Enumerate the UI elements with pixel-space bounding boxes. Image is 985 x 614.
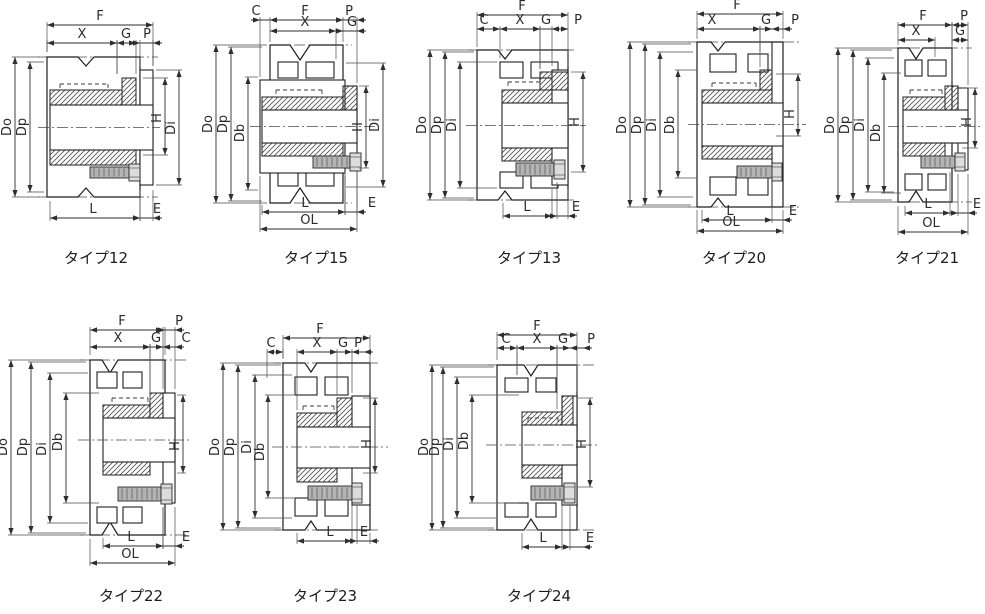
dim-arrow (27, 62, 32, 69)
dim-label: X (78, 27, 87, 42)
dimension-left-2: Db (233, 77, 258, 190)
taper-bushing-hatched-section (337, 398, 352, 427)
dim-arrow (517, 345, 524, 350)
dim-arrow (429, 365, 434, 372)
dim-label: X (708, 13, 717, 28)
dim-arrow (63, 496, 68, 503)
dim-label: G (541, 13, 551, 28)
bolt-shaft (737, 166, 772, 178)
dim-arrow (753, 26, 760, 31)
dim-arrow (563, 544, 570, 549)
dimension-top-4: G (334, 15, 366, 34)
figure-type-2: FCXGPDoDpDiHLEタイプ13 (415, 0, 586, 267)
dim-arrow (835, 48, 840, 55)
dim-arrow (587, 398, 592, 405)
dim-arrow (345, 349, 352, 354)
dim-arrow (570, 332, 577, 337)
dim-label: Do (0, 118, 15, 136)
taper-bushing-hatched-section (262, 97, 343, 110)
dim-label: L (539, 531, 547, 546)
dim-arrow (500, 26, 507, 31)
figure-type-5: FPXGCDoDpDiDbHLEOLタイプ22 (0, 314, 192, 605)
dim-arrow (627, 200, 632, 207)
dim-label: Di (853, 118, 868, 132)
dim-label: Dp (223, 438, 238, 456)
dim-arrow (951, 210, 958, 215)
dim-arrow (363, 335, 370, 340)
dimension-bottom-2: OL (697, 210, 783, 234)
web-recess-slot (710, 177, 736, 195)
dim-arrow (469, 496, 474, 503)
dim-label: P (143, 27, 151, 42)
dim-label: E (182, 530, 190, 545)
dim-arrow (252, 511, 257, 518)
dim-arrow (454, 377, 459, 384)
dim-arrow (213, 196, 218, 203)
dim-arrow (283, 335, 290, 340)
web-recess-slot (500, 62, 523, 78)
dim-label: X (912, 24, 921, 39)
figure-caption: タイプ23 (293, 587, 357, 605)
taper-bushing-hatched-section (343, 86, 357, 110)
dimension-left-1: Dp (15, 62, 44, 192)
dim-arrow (265, 395, 270, 402)
dim-arrow (510, 345, 517, 350)
dim-arrow (12, 57, 17, 64)
bolt-head (772, 163, 782, 181)
taper-bushing-hatched-section (702, 146, 772, 159)
web-recess-slot (97, 507, 117, 523)
dim-label: L (301, 196, 309, 211)
taper-bushing-hatched-section (103, 405, 150, 418)
dim-arrow (783, 26, 790, 31)
pulley-type-diagram-sheet: FXGPDoDpHDiLEタイプ12CFPXGDoDpDbHDiLEOLタイプ1… (0, 0, 985, 614)
figure-caption: タイプ13 (497, 249, 561, 267)
dim-arrow (235, 521, 240, 528)
dim-label: L (924, 197, 932, 212)
dim-label: L (326, 525, 334, 540)
figure-type-4: FPXGDoDpDiDbHLEOLタイプ21 (823, 9, 981, 267)
taper-bushing-hatched-section (945, 86, 958, 110)
dim-arrow (469, 395, 474, 402)
dim-arrow (276, 349, 283, 354)
dim-arrow (972, 88, 977, 95)
dim-arrow (28, 362, 33, 369)
taper-bushing-hatched-section (50, 150, 136, 165)
dim-arrow (850, 193, 855, 200)
figure-caption: タイプ15 (284, 249, 348, 267)
dim-arrow (442, 52, 447, 59)
dim-arrow (550, 345, 557, 350)
dim-label: F (518, 0, 525, 14)
dim-label: H (150, 113, 165, 123)
dim-arrow (697, 26, 704, 31)
dim-arrow (228, 47, 233, 54)
dim-arrow (427, 193, 432, 200)
dim-arrow (330, 349, 337, 354)
dim-label: H (575, 439, 590, 449)
dim-arrow (47, 40, 54, 45)
dim-label: X (114, 331, 123, 346)
dim-arrow (905, 210, 912, 215)
dim-label: Dp (15, 118, 30, 136)
dim-arrow (265, 491, 270, 498)
dim-arrow (454, 511, 459, 518)
dim-arrow (338, 209, 345, 214)
web-recess-slot (123, 372, 142, 388)
web-recess-slot (325, 377, 348, 395)
dim-arrow (245, 183, 250, 190)
dim-arrow (552, 26, 559, 31)
dimension-left-3: Db (869, 73, 901, 193)
dimension-top-4: P (552, 13, 582, 32)
web-recess-slot (295, 377, 317, 395)
dim-label: Dp (216, 115, 231, 133)
dim-arrow (213, 45, 218, 52)
figure-type-6: FCXGPDoDpDiDbHLEタイプ23 (208, 322, 388, 605)
web-recess-slot (295, 498, 317, 516)
dim-arrow (162, 78, 167, 85)
dim-arrow (180, 395, 185, 402)
dim-label: P (354, 336, 362, 351)
dim-label: H (168, 441, 183, 451)
dimension-bottom-1: E (949, 174, 981, 216)
dim-label: X (301, 15, 310, 30)
dim-arrow (697, 228, 704, 233)
figure-caption: タイプ21 (895, 249, 959, 267)
web-recess-slot (325, 498, 348, 516)
dim-label: Di (442, 437, 457, 451)
dim-label: P (175, 314, 183, 329)
dim-arrow (627, 42, 632, 49)
dim-label: Dp (430, 116, 445, 134)
dim-arrow (555, 544, 562, 549)
dim-arrow (47, 516, 52, 523)
dim-arrow (133, 215, 140, 220)
dim-arrow (898, 37, 905, 42)
dim-arrow (865, 58, 870, 65)
dim-arrow (252, 375, 257, 382)
dim-arrow (270, 17, 277, 22)
dim-arrow (440, 521, 445, 528)
bolt-head (161, 484, 172, 504)
dim-label: C (251, 4, 260, 19)
dim-label: Db (233, 124, 248, 142)
taper-bushing-hatched-section (122, 78, 136, 105)
dim-arrow (110, 40, 117, 45)
dim-label: H (960, 117, 975, 127)
dim-arrow (850, 50, 855, 57)
dim-label: C (501, 332, 510, 347)
dim-arrow (350, 226, 357, 231)
figure-type-0: FXGPDoDpHDiLEタイプ12 (0, 9, 182, 267)
web-recess-slot (928, 174, 946, 190)
dim-label: F (733, 0, 740, 13)
dim-arrow (657, 190, 662, 197)
dim-label: Db (663, 116, 678, 134)
dim-label: OL (722, 215, 740, 230)
dim-arrow (835, 195, 840, 202)
dim-label: F (919, 9, 926, 24)
dim-label: X (313, 336, 322, 351)
bolt-shaft (118, 487, 161, 501)
dim-arrow (795, 74, 800, 81)
dim-arrow (63, 393, 68, 400)
dim-arrow (370, 538, 377, 543)
dim-arrow (580, 72, 585, 79)
web-recess-slot (748, 177, 768, 195)
dim-arrow (47, 373, 52, 380)
dim-label: E (973, 197, 981, 212)
dim-arrow (47, 22, 54, 27)
dim-arrow (336, 28, 343, 33)
dim-arrow (220, 523, 225, 530)
dim-arrow (176, 178, 181, 185)
dim-arrow (357, 28, 364, 33)
dim-arrow (972, 141, 977, 148)
dim-arrow (503, 213, 510, 218)
dim-arrow (380, 63, 385, 70)
dim-label: X (533, 332, 542, 347)
dim-arrow (180, 466, 185, 473)
dim-label: Do (615, 116, 630, 134)
web-recess-slot (306, 62, 334, 78)
dim-arrow (776, 11, 783, 16)
dim-label: C (181, 331, 190, 346)
dim-arrow (350, 538, 357, 543)
dim-arrow (363, 161, 368, 168)
taper-bushing-hatched-section (562, 396, 573, 425)
dim-label: C (266, 336, 275, 351)
dim-label: G (121, 27, 131, 42)
web-recess-slot (748, 54, 768, 72)
dim-arrow (945, 22, 952, 27)
web-recess-slot (505, 378, 528, 392)
dim-label: E (789, 204, 797, 219)
dim-arrow (881, 73, 886, 80)
dim-arrow (372, 398, 377, 405)
dim-label: Do (0, 438, 11, 456)
dim-label: F (96, 9, 103, 24)
dim-label: P (574, 13, 582, 28)
dim-arrow (103, 543, 110, 548)
dim-label: Di (445, 118, 460, 132)
dim-arrow (364, 349, 371, 354)
dim-arrow (162, 148, 167, 155)
dim-label: G (955, 24, 965, 39)
dim-arrow (702, 217, 709, 222)
dim-arrow (143, 344, 150, 349)
dim-arrow (442, 191, 447, 198)
web-recess-slot (505, 503, 528, 517)
bolt-shaft (90, 167, 129, 178)
dim-label: Di (368, 118, 383, 132)
dim-label: X (516, 13, 525, 28)
dim-arrow (8, 360, 13, 367)
dimension-top-3: G (952, 24, 968, 43)
dim-label: OL (300, 213, 318, 228)
dimension-top-1: C (266, 336, 283, 378)
dim-label: Db (51, 433, 66, 451)
figure-type-7: FCXGPDoDpDiDbHLEタイプ24 (417, 319, 598, 605)
taper-bushing-hatched-section (540, 72, 568, 90)
dim-arrow (961, 229, 968, 234)
dim-arrow (561, 26, 568, 31)
dimension-left-3: Db (663, 70, 697, 178)
dim-arrow (440, 367, 445, 374)
dim-label: Do (415, 116, 430, 134)
dim-arrow (642, 198, 647, 205)
dim-label: OL (121, 547, 139, 562)
dim-arrow (176, 70, 181, 77)
figure-type-1: CFPXGDoDpDbHDiLEOLタイプ15 (201, 4, 386, 267)
dim-label: L (127, 530, 135, 545)
dim-label: H (568, 117, 583, 127)
taper-bushing-hatched-section (103, 462, 150, 475)
dim-arrow (561, 12, 568, 17)
dim-label: G (558, 332, 568, 347)
dim-label: E (153, 202, 161, 217)
dim-label: Do (823, 116, 838, 134)
taper-bushing-hatched-section (150, 393, 163, 418)
dim-label: Db (869, 124, 884, 142)
web-recess-slot (905, 60, 922, 76)
web-recess-slot (123, 507, 142, 523)
dim-arrow (90, 327, 97, 332)
dim-arrow (235, 365, 240, 372)
taper-bushing-hatched-section (297, 413, 337, 427)
dim-label: L (89, 202, 97, 217)
technical-drawing-canvas: FXGPDoDpHDiLEタイプ12CFPXGDoDpDbHDiLEOLタイプ1… (0, 0, 985, 614)
bolt-head (352, 483, 362, 503)
dim-arrow (220, 363, 225, 370)
figure-caption: タイプ12 (64, 249, 128, 267)
dim-arrow (493, 26, 500, 31)
web-recess-slot (97, 372, 117, 388)
taper-bushing-hatched-section (502, 148, 552, 161)
dim-arrow (270, 28, 277, 33)
dim-arrow (27, 185, 32, 192)
dim-label: G (761, 13, 771, 28)
dim-arrow (580, 165, 585, 172)
dim-arrow (928, 37, 935, 42)
dim-arrow (372, 466, 377, 473)
dim-arrow (50, 215, 57, 220)
dim-label: Db (457, 432, 472, 450)
figure-caption: タイプ22 (99, 587, 163, 605)
dim-label: H (783, 109, 798, 119)
taper-bushing-hatched-section (522, 465, 562, 478)
dim-arrow (522, 544, 529, 549)
dimension-right-0: H (575, 398, 593, 487)
dim-label: C (479, 13, 488, 28)
taper-bushing-hatched-section (903, 97, 945, 110)
dim-arrow (765, 217, 772, 222)
dim-arrow (336, 17, 343, 22)
dim-arrow (90, 560, 97, 565)
dim-arrow (156, 543, 163, 548)
bolt-shaft (308, 486, 352, 500)
web-recess-slot (928, 60, 946, 76)
dim-label: OL (922, 216, 940, 231)
figure-caption: タイプ20 (702, 249, 766, 267)
dim-arrow (429, 523, 434, 530)
dim-label: F (316, 322, 323, 337)
dimension-left-1: Dp (630, 44, 691, 205)
dim-arrow (260, 226, 267, 231)
dim-arrow (90, 344, 97, 349)
dim-arrow (12, 190, 17, 197)
taper-bushing-hatched-section (702, 90, 772, 103)
dim-label: Dp (630, 116, 645, 134)
dim-label: G (338, 336, 348, 351)
dim-label: G (347, 15, 357, 30)
dim-arrow (865, 185, 870, 192)
taper-bushing-hatched-section (502, 90, 552, 103)
dim-label: P (791, 13, 799, 28)
dimension-right-0: H (568, 72, 586, 172)
taper-bushing-hatched-section (760, 70, 772, 90)
dim-arrow (245, 77, 250, 84)
dim-label: G (151, 331, 161, 346)
dim-arrow (297, 538, 304, 543)
dim-arrow (380, 180, 385, 187)
dim-arrow (457, 62, 462, 69)
dim-arrow (427, 50, 432, 57)
dim-label: H (351, 122, 366, 132)
figure-type-3: FXGPDoDpDiDbHLEOLタイプ20 (615, 0, 806, 267)
dim-label: Dp (16, 438, 31, 456)
dim-arrow (795, 129, 800, 136)
dim-arrow (657, 52, 662, 59)
dim-arrow (168, 560, 175, 565)
dim-label: E (368, 196, 376, 211)
dim-arrow (587, 480, 592, 487)
dim-label: L (523, 200, 531, 215)
dim-label: Do (208, 438, 223, 456)
bolt-head (564, 483, 575, 503)
figure-caption: タイプ24 (507, 587, 571, 605)
dim-arrow (357, 209, 364, 214)
dim-arrow (776, 228, 783, 233)
dim-arrow (642, 44, 647, 51)
dim-label: F (118, 314, 125, 329)
dim-label: E (586, 531, 594, 546)
web-recess-slot (536, 503, 556, 517)
bolt-head (554, 160, 565, 179)
dim-arrow (533, 26, 540, 31)
dim-arrow (550, 213, 557, 218)
dim-arrow (457, 181, 462, 188)
web-recess-slot (710, 54, 736, 72)
dim-label: P (960, 9, 968, 24)
taper-bushing-hatched-section (50, 90, 122, 105)
dim-arrow (898, 22, 905, 27)
dimension-bottom-2: OL (898, 206, 968, 235)
dim-label: H (360, 439, 375, 449)
bolt-shaft (313, 156, 350, 168)
dim-arrow (363, 86, 368, 93)
dim-arrow (28, 526, 33, 533)
dim-arrow (697, 11, 704, 16)
dim-label: Db (253, 443, 268, 461)
bolt-head (129, 164, 140, 181)
taper-bushing-hatched-section (262, 143, 343, 156)
bolt-shaft (531, 486, 564, 500)
dim-arrow (133, 40, 140, 45)
dim-arrow (297, 349, 304, 354)
web-recess-slot (905, 174, 922, 190)
